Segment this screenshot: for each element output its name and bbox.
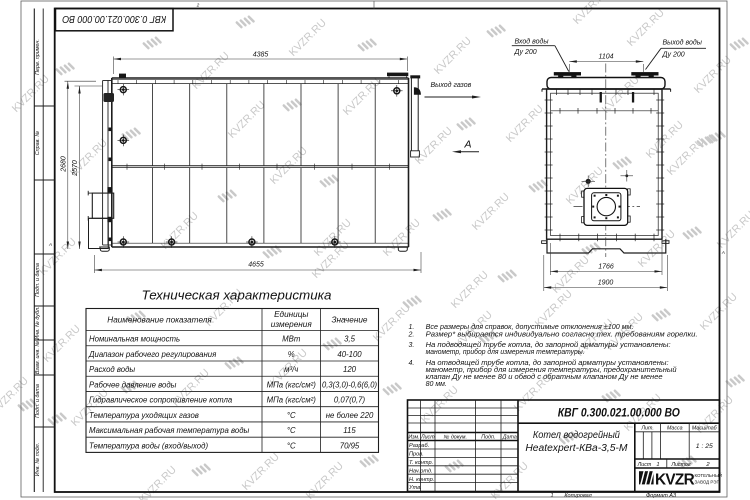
svg-text:МВт: МВт [282,335,301,344]
svg-text:1: 1 [550,493,553,499]
svg-text:Взам. инв. №: Взам. инв. № [35,341,41,375]
svg-text:Размер* выбирается индивидуаль: Размер* выбирается индивидуально согласн… [426,331,698,339]
svg-text:2680: 2680 [60,156,67,173]
svg-text:0,07(0,7): 0,07(0,7) [334,396,366,405]
svg-text:1.: 1. [409,324,415,331]
svg-text:Нач.отд.: Нач.отд. [409,468,433,474]
svg-text:Разраб.: Разраб. [409,443,429,449]
svg-text:Номинальная мощность: Номинальная мощность [89,335,180,344]
svg-text:А: А [48,242,52,247]
svg-text:2: 2 [196,2,200,7]
svg-text:Ду 200: Ду 200 [514,49,537,56]
svg-text:Наименование показателя: Наименование показателя [107,316,212,325]
svg-text:Температура воды (вход/выход): Температура воды (вход/выход) [89,441,208,450]
svg-text:1: 1 [656,462,659,468]
svg-text:Подп. и дата: Подп. и дата [35,384,41,418]
svg-text:КВГ 0.300.021.00.000 ВО: КВГ 0.300.021.00.000 ВО [558,407,680,420]
svg-text:Масса: Масса [667,426,683,432]
svg-text:1900: 1900 [598,280,614,287]
svg-text:м³/ч: м³/ч [284,365,298,374]
svg-text:2.: 2. [408,332,415,339]
svg-text:А: А [463,139,471,151]
svg-text:Справ. №: Справ. № [35,131,41,156]
svg-text:клапан Ду не менее 80 и обвод: клапан Ду не менее 80 и обвод с обратным… [426,373,663,381]
svg-text:3,5: 3,5 [344,335,356,344]
svg-text:Единицы: Единицы [274,310,308,319]
svg-text:Все размеры для справок, допус: Все размеры для справок, допустимые откл… [426,323,634,331]
svg-text:Н. контр.: Н. контр. [409,477,434,483]
svg-text:МПа (кгс/см²): МПа (кгс/см²) [267,380,317,389]
svg-text:Температура уходящих газов: Температура уходящих газов [89,411,199,420]
svg-text:3.: 3. [409,342,415,349]
svg-text:70/95: 70/95 [340,441,360,450]
svg-text:КОТЕЛЬНЫЙ: КОТЕЛЬНЫЙ [695,473,723,478]
svg-text:Рабочее давление воды: Рабочее давление воды [89,380,177,389]
svg-text:°С: °С [287,426,296,435]
svg-text:120: 120 [343,365,357,374]
svg-text:манометр, прибор для измерения: манометр, прибор для измерения температу… [426,366,677,374]
svg-text:°С: °С [287,441,296,450]
svg-text:1 : 25: 1 : 25 [696,443,713,450]
svg-text:115: 115 [343,426,356,435]
svg-text:манометр, прибор для измерения: манометр, прибор для измерения температу… [426,348,585,356]
svg-text:Пров.: Пров. [409,452,424,458]
svg-text:Копировал: Копировал [564,493,591,499]
svg-text:Ду 200: Ду 200 [662,52,685,59]
svg-text:Расход воды: Расход воды [89,365,135,374]
svg-text:Подп. и дата: Подп. и дата [35,263,41,297]
svg-text:Вход воды: Вход воды [515,38,550,46]
svg-text:4655: 4655 [248,262,264,269]
svg-text:°С: °С [287,411,296,420]
svg-text:1104: 1104 [598,54,613,61]
svg-text:Heatexpert-КВа-3,5-М: Heatexpert-КВа-3,5-М [525,443,628,454]
svg-text:№ докум.: № докум. [444,434,467,440]
svg-text:2570: 2570 [72,160,79,177]
svg-text:Изм.: Изм. [408,434,419,440]
svg-text:На отводящей трубе котла, до з: На отводящей трубе котла, до запорной ар… [426,359,669,367]
svg-text:Значение: Значение [332,316,368,325]
svg-text:МПа (кгс/см²): МПа (кгс/см²) [267,396,317,405]
svg-text:Выход газов: Выход газов [431,81,472,89]
svg-text:4.: 4. [409,360,415,367]
svg-text:80 мм.: 80 мм. [426,381,447,388]
svg-text:Максимальная рабочая температу: Максимальная рабочая температура воды [89,426,250,435]
svg-text:А: А [721,250,725,255]
svg-text:Гидравлическое сопротивление к: Гидравлическое сопротивление котла [89,396,233,405]
svg-text:Лит.: Лит. [640,426,653,432]
svg-text:измерения: измерения [271,320,313,329]
svg-text:Котел водогрейный: Котел водогрейный [533,430,621,441]
svg-text:Дата: Дата [502,434,517,440]
svg-text:Лист: Лист [637,462,652,468]
svg-text:Листов: Листов [670,462,691,468]
svg-text:На подводящей трубе котла, до: На подводящей трубе котла, до запорной а… [426,341,671,349]
svg-text:Инв. № подл.: Инв. № подл. [35,443,41,476]
svg-text:%: % [288,350,295,359]
svg-text:Утв.: Утв. [408,485,422,491]
svg-text:0,3(3,0)-0,6(6,0): 0,3(3,0)-0,6(6,0) [322,380,377,389]
svg-text:KVZR: KVZR [655,472,694,489]
svg-text:КВГ 0.300.021.00.000 ВО: КВГ 0.300.021.00.000 ВО [62,13,166,24]
svg-text:40-100: 40-100 [337,350,362,359]
svg-text:4385: 4385 [253,52,269,59]
svg-text:Инв. № дубл.: Инв. № дубл. [35,306,41,339]
svg-text:Лист: Лист [420,434,435,440]
svg-text:Подп.: Подп. [481,434,495,440]
svg-text:не более 220: не более 220 [326,411,374,420]
svg-text:Перв. примен.: Перв. примен. [35,39,41,75]
svg-text:Техническая характеристика: Техническая характеристика [142,287,332,302]
svg-text:1766: 1766 [598,263,614,270]
svg-text:Формат А3: Формат А3 [646,493,677,499]
svg-text:Выход воды: Выход воды [663,38,703,46]
svg-text:ЗАВОД РЭП: ЗАВОД РЭП [695,479,720,484]
svg-text:Т. контр.: Т. контр. [409,460,433,466]
svg-text:Масштаб: Масштаб [692,426,718,432]
svg-text:Диапазон рабочего регулировани: Диапазон рабочего регулирования [88,350,217,359]
